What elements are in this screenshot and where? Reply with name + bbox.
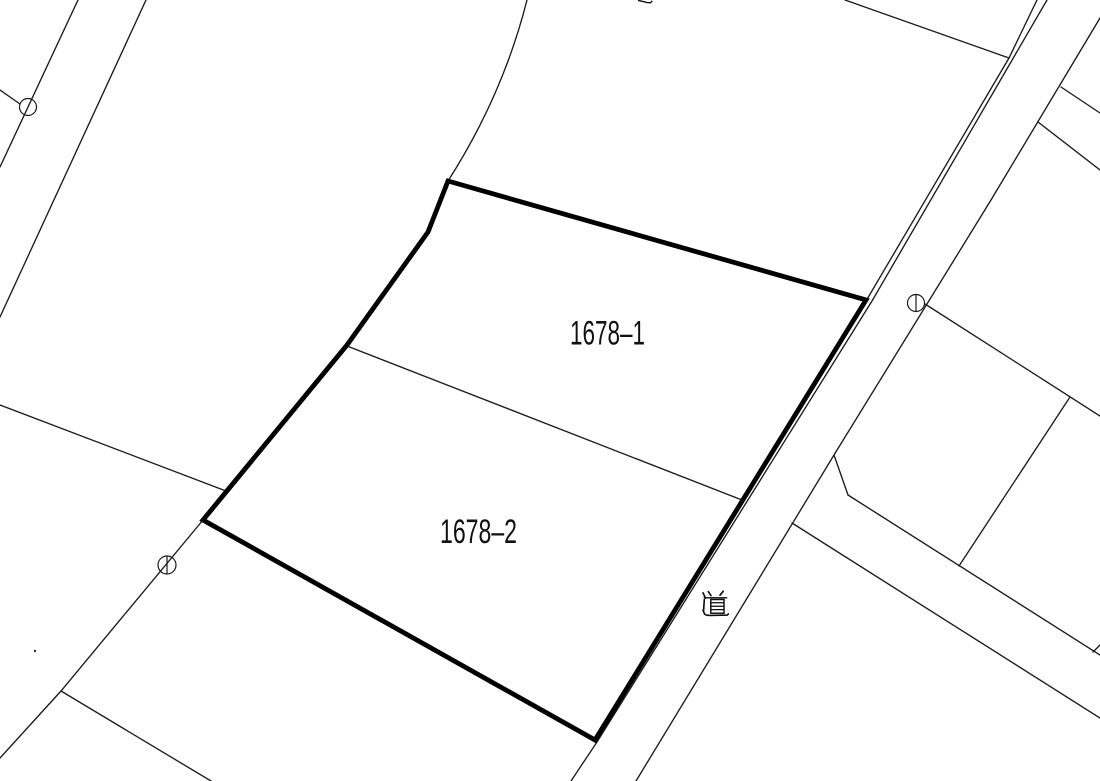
svg-text:1678–2: 1678–2 bbox=[440, 513, 517, 551]
svg-text:1678–1: 1678–1 bbox=[570, 315, 645, 353]
